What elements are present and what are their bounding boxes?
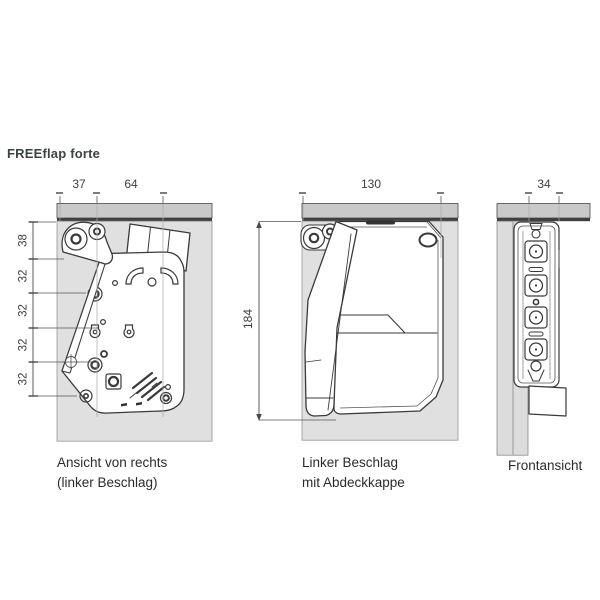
dim-130-label: 130 xyxy=(361,177,381,191)
dim-64-label: 64 xyxy=(124,177,138,191)
dim-37-label: 37 xyxy=(72,177,86,191)
flap-front-edge xyxy=(529,386,566,416)
technical-drawing: 38 32 32 32 32 37 64 Ansicht von rechts … xyxy=(0,0,600,600)
cap-oval-hole xyxy=(420,234,437,247)
view-front: 34 Frontansicht xyxy=(497,177,590,473)
cabinet-top-edge xyxy=(497,218,590,221)
drawing-page: 38 32 32 32 32 37 64 Ansicht von rechts … xyxy=(0,0,600,600)
product-title: FREEflap forte xyxy=(7,146,100,161)
dim-184-label: 184 xyxy=(241,309,255,329)
dim-32-label: 32 xyxy=(18,339,30,352)
cabinet-top-panel xyxy=(57,204,212,219)
caption-cover-line2: mit Abdeckkappe xyxy=(302,475,405,490)
dim-38-label: 38 xyxy=(18,234,30,247)
dim-32-label: 32 xyxy=(18,304,30,317)
dim-34-label: 34 xyxy=(537,177,551,191)
fitting-front-body xyxy=(514,222,559,387)
cap-top-slot xyxy=(366,221,395,225)
view-cover-cap: 130 184 Linker Beschlag mit Abdeckkappe xyxy=(241,177,458,490)
dimension-top-left-view: 37 64 xyxy=(56,177,167,203)
cabinet-top-panel xyxy=(497,204,590,219)
cabinet-top-panel xyxy=(302,204,458,219)
cabinet-top-edge xyxy=(57,218,212,221)
caption-side-line1: Ansicht von rechts xyxy=(57,455,168,470)
dim-32-label: 32 xyxy=(18,270,30,283)
caption-side-line2: (linker Beschlag) xyxy=(57,475,158,490)
dim-32-label: 32 xyxy=(18,373,30,386)
caption-cover-line1: Linker Beschlag xyxy=(302,455,398,470)
caption-front: Frontansicht xyxy=(508,458,583,473)
view-side-mechanism: 38 32 32 32 32 37 64 Ansicht von rechts … xyxy=(18,177,213,490)
